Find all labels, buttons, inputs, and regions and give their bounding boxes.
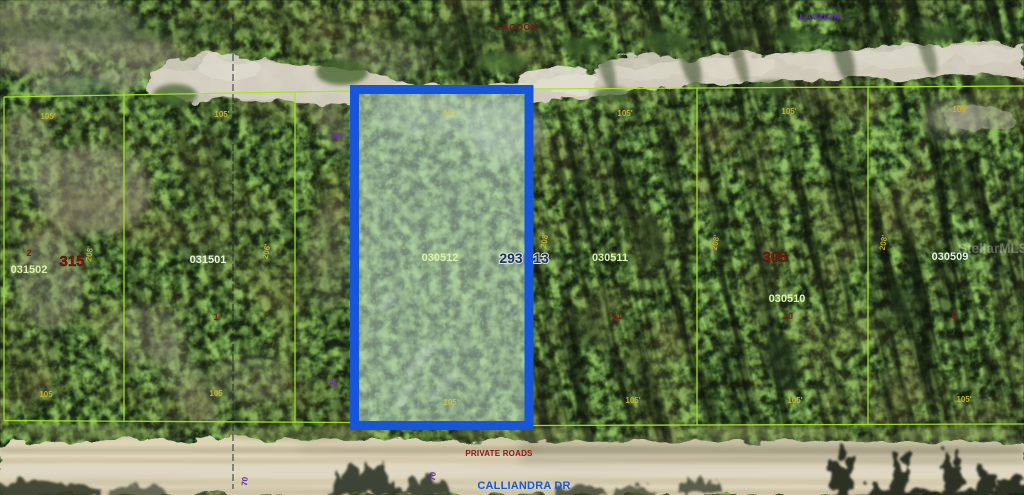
svg-text:305: 305 (762, 249, 787, 266)
svg-text:40: 40 (330, 378, 339, 387)
svg-text:105': 105' (443, 108, 458, 117)
svg-text:13: 13 (533, 250, 549, 266)
svg-text:CALLIANDRA DR: CALLIANDRA DR (477, 480, 570, 492)
svg-text:030511: 030511 (592, 252, 628, 264)
svg-text:70: 70 (428, 471, 438, 481)
svg-text:208': 208' (84, 245, 95, 261)
svg-text:10: 10 (783, 311, 793, 321)
svg-text:293: 293 (499, 250, 523, 266)
svg-text:LAGOON: LAGOON (497, 22, 538, 32)
svg-text:40': 40' (331, 132, 342, 141)
svg-text:105': 105' (443, 398, 458, 407)
svg-text:031502: 031502 (11, 264, 48, 276)
svg-text:2: 2 (26, 248, 31, 258)
svg-text:105: 105 (39, 390, 53, 399)
svg-text:030510: 030510 (769, 293, 806, 305)
svg-text:105': 105' (617, 109, 632, 118)
svg-text:LAGOON: LAGOON (800, 12, 841, 22)
svg-text:105': 105' (625, 396, 640, 405)
svg-text:315: 315 (59, 253, 84, 270)
svg-text:030512: 030512 (422, 252, 459, 264)
svg-text:105': 105' (787, 396, 802, 405)
svg-text:11: 11 (612, 311, 622, 321)
svg-text:031501: 031501 (190, 254, 227, 266)
svg-text:105': 105' (956, 395, 971, 404)
svg-text:1: 1 (213, 312, 218, 322)
svg-text:105': 105' (214, 110, 229, 119)
svg-text:9: 9 (951, 311, 956, 321)
svg-text:105': 105' (781, 107, 796, 116)
svg-text:StellarMLS: StellarMLS (958, 241, 1024, 256)
svg-text:105': 105' (40, 112, 55, 121)
svg-text:70: 70 (240, 476, 250, 486)
svg-text:PRIVATE ROADS: PRIVATE ROADS (465, 449, 533, 458)
svg-text:105: 105 (209, 389, 223, 398)
svg-text:105': 105' (952, 105, 967, 114)
